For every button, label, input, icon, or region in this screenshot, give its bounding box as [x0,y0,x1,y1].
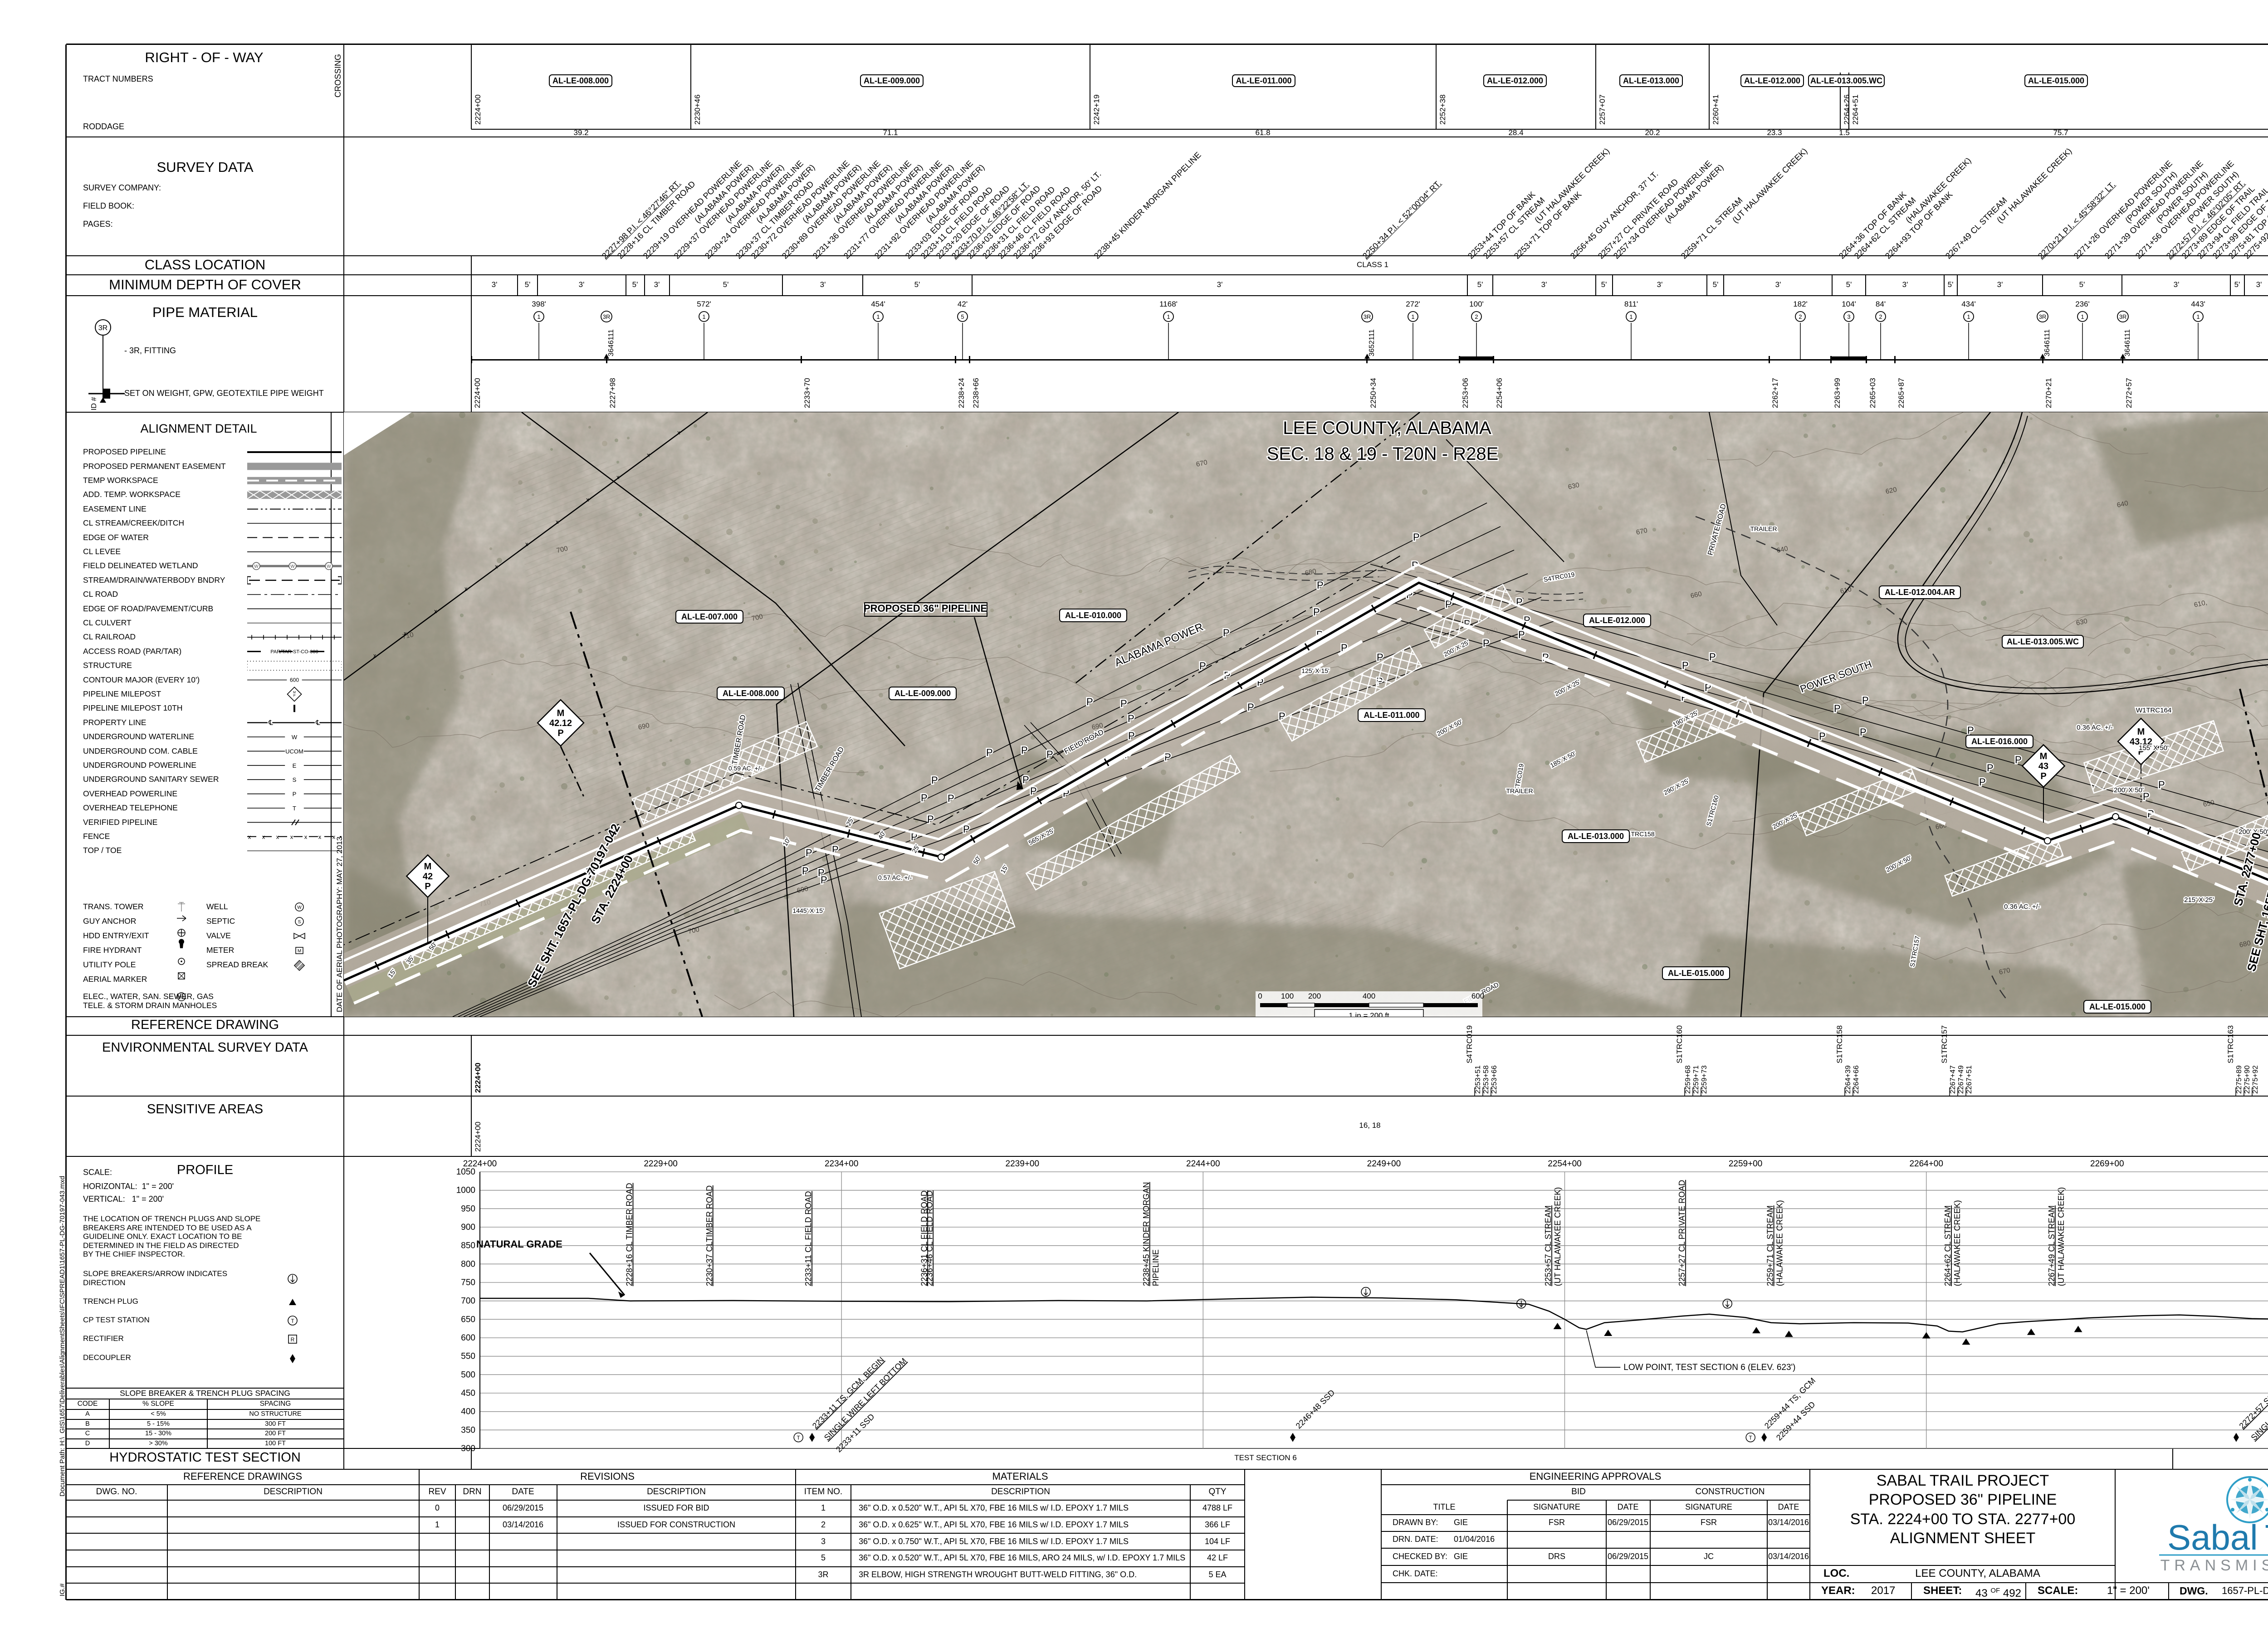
svg-text:P: P [927,814,934,825]
svg-text:1: 1 [537,313,540,320]
svg-text:2224+00: 2224+00 [463,1159,497,1169]
svg-text:3R: 3R [603,313,611,320]
svg-text:750: 750 [461,1278,475,1287]
svg-text:P: P [931,775,938,786]
svg-text:2228+16 CL TIMBER ROAD: 2228+16 CL TIMBER ROAD [625,1183,634,1286]
svg-text:NATURAL GRADE: NATURAL GRADE [476,1238,562,1250]
svg-text:LEE COUNTY, ALABAMA: LEE COUNTY, ALABAMA [1283,418,1491,438]
svg-text:2264+62 CL STREAM: 2264+62 CL STREAM [1943,1205,1952,1286]
svg-text:P: P [986,747,993,758]
svg-text:P: P [2040,771,2046,781]
svg-text:℄: ℄ [268,719,273,727]
svg-text:x: x [373,652,376,659]
svg-text:x: x [434,608,437,614]
svg-text:TRAILER: TRAILER [1506,787,1533,795]
svg-text:P: P [806,847,812,858]
svg-text:W: W [297,905,302,910]
svg-text:E: E [293,762,297,769]
svg-text:P: P [1128,713,1134,724]
svg-text:Sabal Trail: Sabal Trail [2167,1517,2268,1557]
svg-text:P: P [1987,762,1994,774]
svg-text:M: M [424,862,432,872]
svg-text:42: 42 [423,872,433,882]
svg-text:2236+46 CL FIELD ROAD: 2236+46 CL FIELD ROAD [925,1190,934,1286]
svg-text:W: W [290,564,295,569]
svg-text:M: M [2137,727,2145,737]
svg-text:PAR/TAR-ST-CO-000: PAR/TAR-ST-CO-000 [270,649,318,655]
svg-text:PIPELINE: PIPELINE [1151,1249,1160,1286]
svg-text:W: W [292,734,298,741]
svg-text:400: 400 [461,1407,475,1417]
svg-text:x: x [647,451,650,458]
svg-text:P: P [293,791,297,798]
svg-text:P: P [1199,660,1206,672]
svg-text:2: 2 [1799,313,1802,320]
svg-text:M: M [298,949,301,954]
svg-text:2: 2 [1879,313,1882,320]
svg-text:2272+57 SSD, BEGIN: 2272+57 SSD, BEGIN [2238,1367,2268,1430]
svg-text:43: 43 [2038,761,2048,771]
svg-text:3R: 3R [1364,313,1371,320]
svg-text:P: P [1862,695,1869,706]
svg-text:5: 5 [961,313,964,320]
svg-text:x: x [464,585,468,592]
svg-text:2264+00: 2264+00 [1909,1159,1943,1169]
svg-text:P: P [948,793,954,804]
svg-text:200: 200 [1308,992,1321,1000]
svg-text:S: S [298,920,301,925]
svg-text:1: 1 [1629,313,1633,320]
svg-text:P: P [2015,754,2022,765]
svg-text:1: 1 [1967,313,1970,320]
svg-text:2254+00: 2254+00 [1548,1159,1582,1169]
svg-text:P: P [2143,791,2150,802]
svg-text:S: S [293,776,297,783]
svg-text:T: T [797,1435,801,1441]
svg-text:P: P [1086,696,1093,707]
svg-text:215' X 25': 215' X 25' [2184,896,2214,904]
svg-text:T: T [293,805,296,812]
svg-text:x: x [304,834,308,840]
svg-text:x: x [677,429,680,436]
svg-text:LOW POINT, TEST SECTION 6 (ELE: LOW POINT, TEST SECTION 6 (ELEV. 623') [1623,1363,1795,1372]
svg-text:℄: ℄ [315,719,320,727]
svg-text:2229+00: 2229+00 [644,1159,678,1169]
svg-text:800: 800 [461,1259,475,1269]
svg-text:42.12: 42.12 [549,718,572,728]
svg-text:1: 1 [702,313,705,320]
svg-text:TRAILER: TRAILER [1750,525,1777,532]
svg-text:2234+00: 2234+00 [825,1159,859,1169]
svg-text:3R: 3R [2039,313,2047,320]
svg-text:1: 1 [1167,313,1170,320]
svg-text:P: P [2158,779,2165,790]
svg-text:(HALAWAKEE CREEK): (HALAWAKEE CREEK) [1775,1200,1784,1286]
svg-text:1: 1 [2196,313,2200,320]
svg-text:2257+27 CL PRIVATE ROAD: 2257+27 CL PRIVATE ROAD [1677,1180,1686,1286]
svg-text:450: 450 [461,1389,475,1398]
svg-text:TRANSMISSION: TRANSMISSION [2160,1557,2268,1574]
svg-text:950: 950 [461,1204,475,1214]
svg-text:W1TRC164: W1TRC164 [2136,707,2171,714]
svg-text:700: 700 [461,1297,475,1306]
svg-text:P: P [1317,580,1324,591]
svg-text:P: P [557,728,563,738]
svg-text:0.36 AC. +/-: 0.36 AC. +/- [2077,724,2113,731]
svg-text:155' X 50': 155' X 50' [2139,744,2169,752]
svg-text:W: W [327,564,331,569]
svg-text:P: P [1021,745,1028,756]
svg-text:600: 600 [290,677,299,683]
svg-text:P: P [1120,698,1127,709]
svg-text:M: M [2040,751,2048,761]
svg-text:x: x [248,834,251,840]
svg-text:2: 2 [1475,313,1478,320]
svg-text:2249+00: 2249+00 [1367,1159,1401,1169]
svg-text:1445' X 15': 1445' X 15' [792,907,824,914]
svg-text:x: x [556,518,559,525]
svg-text:2269+00: 2269+00 [2090,1159,2124,1169]
svg-text:P: P [1022,774,1029,785]
svg-text:1 in = 200 ft: 1 in = 200 ft [1349,1011,1389,1017]
svg-text:x: x [404,630,407,637]
svg-text:x: x [276,834,279,840]
svg-text:3R: 3R [2119,313,2127,320]
svg-text:MH: MH [178,995,185,999]
svg-text:2233+11 CL FIELD ROAD: 2233+11 CL FIELD ROAD [804,1191,813,1286]
svg-text:P: P [1860,726,1867,738]
svg-text:P: P [1164,751,1171,763]
svg-text:1050: 1050 [456,1167,475,1177]
svg-text:P: P [921,792,928,804]
svg-text:100: 100 [1281,992,1294,1000]
svg-text:P: P [1247,702,1254,713]
svg-text:0: 0 [1258,992,1262,1000]
svg-text:T: T [1749,1435,1753,1441]
svg-text:1000: 1000 [456,1186,475,1195]
svg-text:2230+37 CLTIMBER ROAD: 2230+37 CLTIMBER ROAD [705,1185,714,1286]
svg-text:P: P [1979,776,1986,788]
svg-text:x: x [525,541,528,547]
svg-text:125' X 15': 125' X 15' [1301,667,1329,674]
svg-text:300: 300 [461,1444,475,1453]
svg-text:900: 900 [461,1223,475,1232]
svg-text:350: 350 [461,1425,475,1435]
svg-text:P: P [1128,730,1135,741]
svg-text:x: x [262,834,265,840]
svg-text:1: 1 [2081,313,2084,320]
svg-text:P: P [1413,531,1420,543]
svg-text:P: P [425,882,430,892]
svg-text:P: P [1483,638,1490,649]
svg-text:P: P [802,865,809,877]
svg-text:850: 850 [461,1241,475,1251]
svg-text:UCOM: UCOM [285,748,303,755]
svg-text:0.59 AC. +/-: 0.59 AC. +/- [728,765,763,772]
svg-text:M: M [293,691,296,694]
svg-text:2267+49 CL STREAM: 2267+49 CL STREAM [2047,1205,2056,1286]
svg-text:2244+00: 2244+00 [1186,1159,1220,1169]
svg-text:1: 1 [1411,313,1414,320]
svg-text:M: M [557,708,565,718]
svg-text:200' X 50': 200' X 50' [2114,786,2144,794]
svg-text:500: 500 [461,1370,475,1380]
svg-text:x: x [586,496,589,503]
svg-text:P: P [1223,627,1230,639]
svg-text:x: x [495,563,498,570]
svg-text:0.36 AC. +/-: 0.36 AC. +/- [2004,903,2040,911]
svg-text:x: x [616,474,620,481]
svg-text:650: 650 [461,1315,475,1324]
svg-text:P: P [1834,703,1841,714]
svg-text:x: x [290,834,293,840]
svg-text:2246+48 SSD: 2246+48 SSD [1294,1388,1337,1431]
svg-text:(UT HALAWAKEE CREEK): (UT HALAWAKEE CREEK) [1553,1187,1562,1286]
svg-text:600: 600 [461,1333,475,1343]
svg-text:P: P [1313,606,1320,618]
svg-text:R: R [291,1336,295,1343]
svg-text:2238+45 KINDER MORGAN: 2238+45 KINDER MORGAN [1142,1182,1151,1287]
svg-text:P: P [293,694,296,697]
svg-text:2259+71 CL STREAM: 2259+71 CL STREAM [1766,1205,1775,1286]
svg-text:600: 600 [1471,992,1484,1000]
svg-text:2259+00: 2259+00 [1729,1159,1763,1169]
svg-text:SEC. 18 & 19 - T20N - R28E: SEC. 18 & 19 - T20N - R28E [1267,444,1499,464]
svg-text:P: P [821,874,827,886]
svg-text:550: 550 [461,1352,475,1361]
svg-text:0.57 AC. +/-: 0.57 AC. +/- [878,874,912,881]
svg-text:W: W [254,564,259,569]
svg-text:400: 400 [1363,992,1375,1000]
svg-text:3: 3 [1847,313,1850,320]
svg-text:P: P [1709,651,1716,663]
svg-text:(HALAWAKEE CREEK): (HALAWAKEE CREEK) [1953,1200,1962,1286]
svg-text:2239+00: 2239+00 [1006,1159,1040,1169]
svg-text:3R: 3R [98,324,108,332]
svg-text:PROPOSED 36" PIPELINE: PROPOSED 36" PIPELINE [864,603,987,614]
svg-text:2253+57 CL STREAM: 2253+57 CL STREAM [1544,1205,1553,1286]
svg-text:1: 1 [876,313,880,320]
svg-text:(UT HALAWAKEE CREEK): (UT HALAWAKEE CREEK) [2057,1187,2066,1286]
svg-text:T: T [291,1318,294,1324]
svg-text:x: x [318,834,322,840]
svg-text:P: P [1682,660,1689,671]
